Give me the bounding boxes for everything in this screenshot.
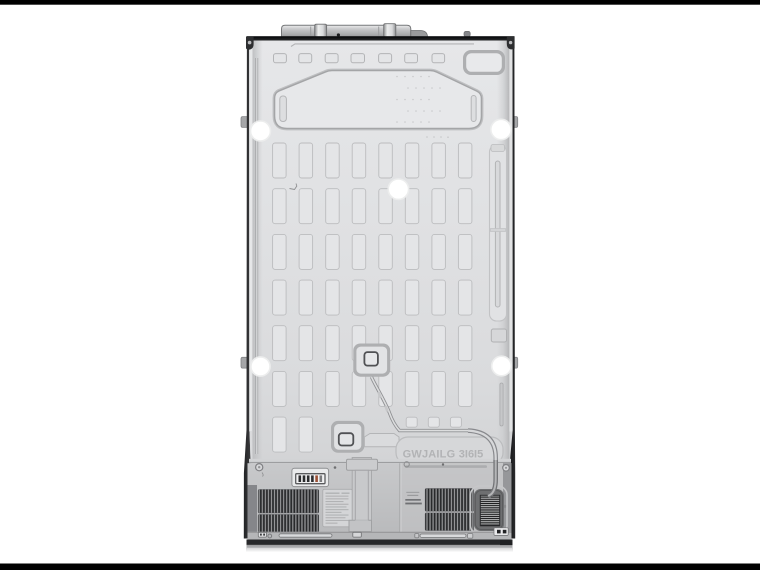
svg-text:GWJAILG: GWJAILG xyxy=(403,449,456,461)
svg-text:3I6I5: 3I6I5 xyxy=(459,449,483,461)
